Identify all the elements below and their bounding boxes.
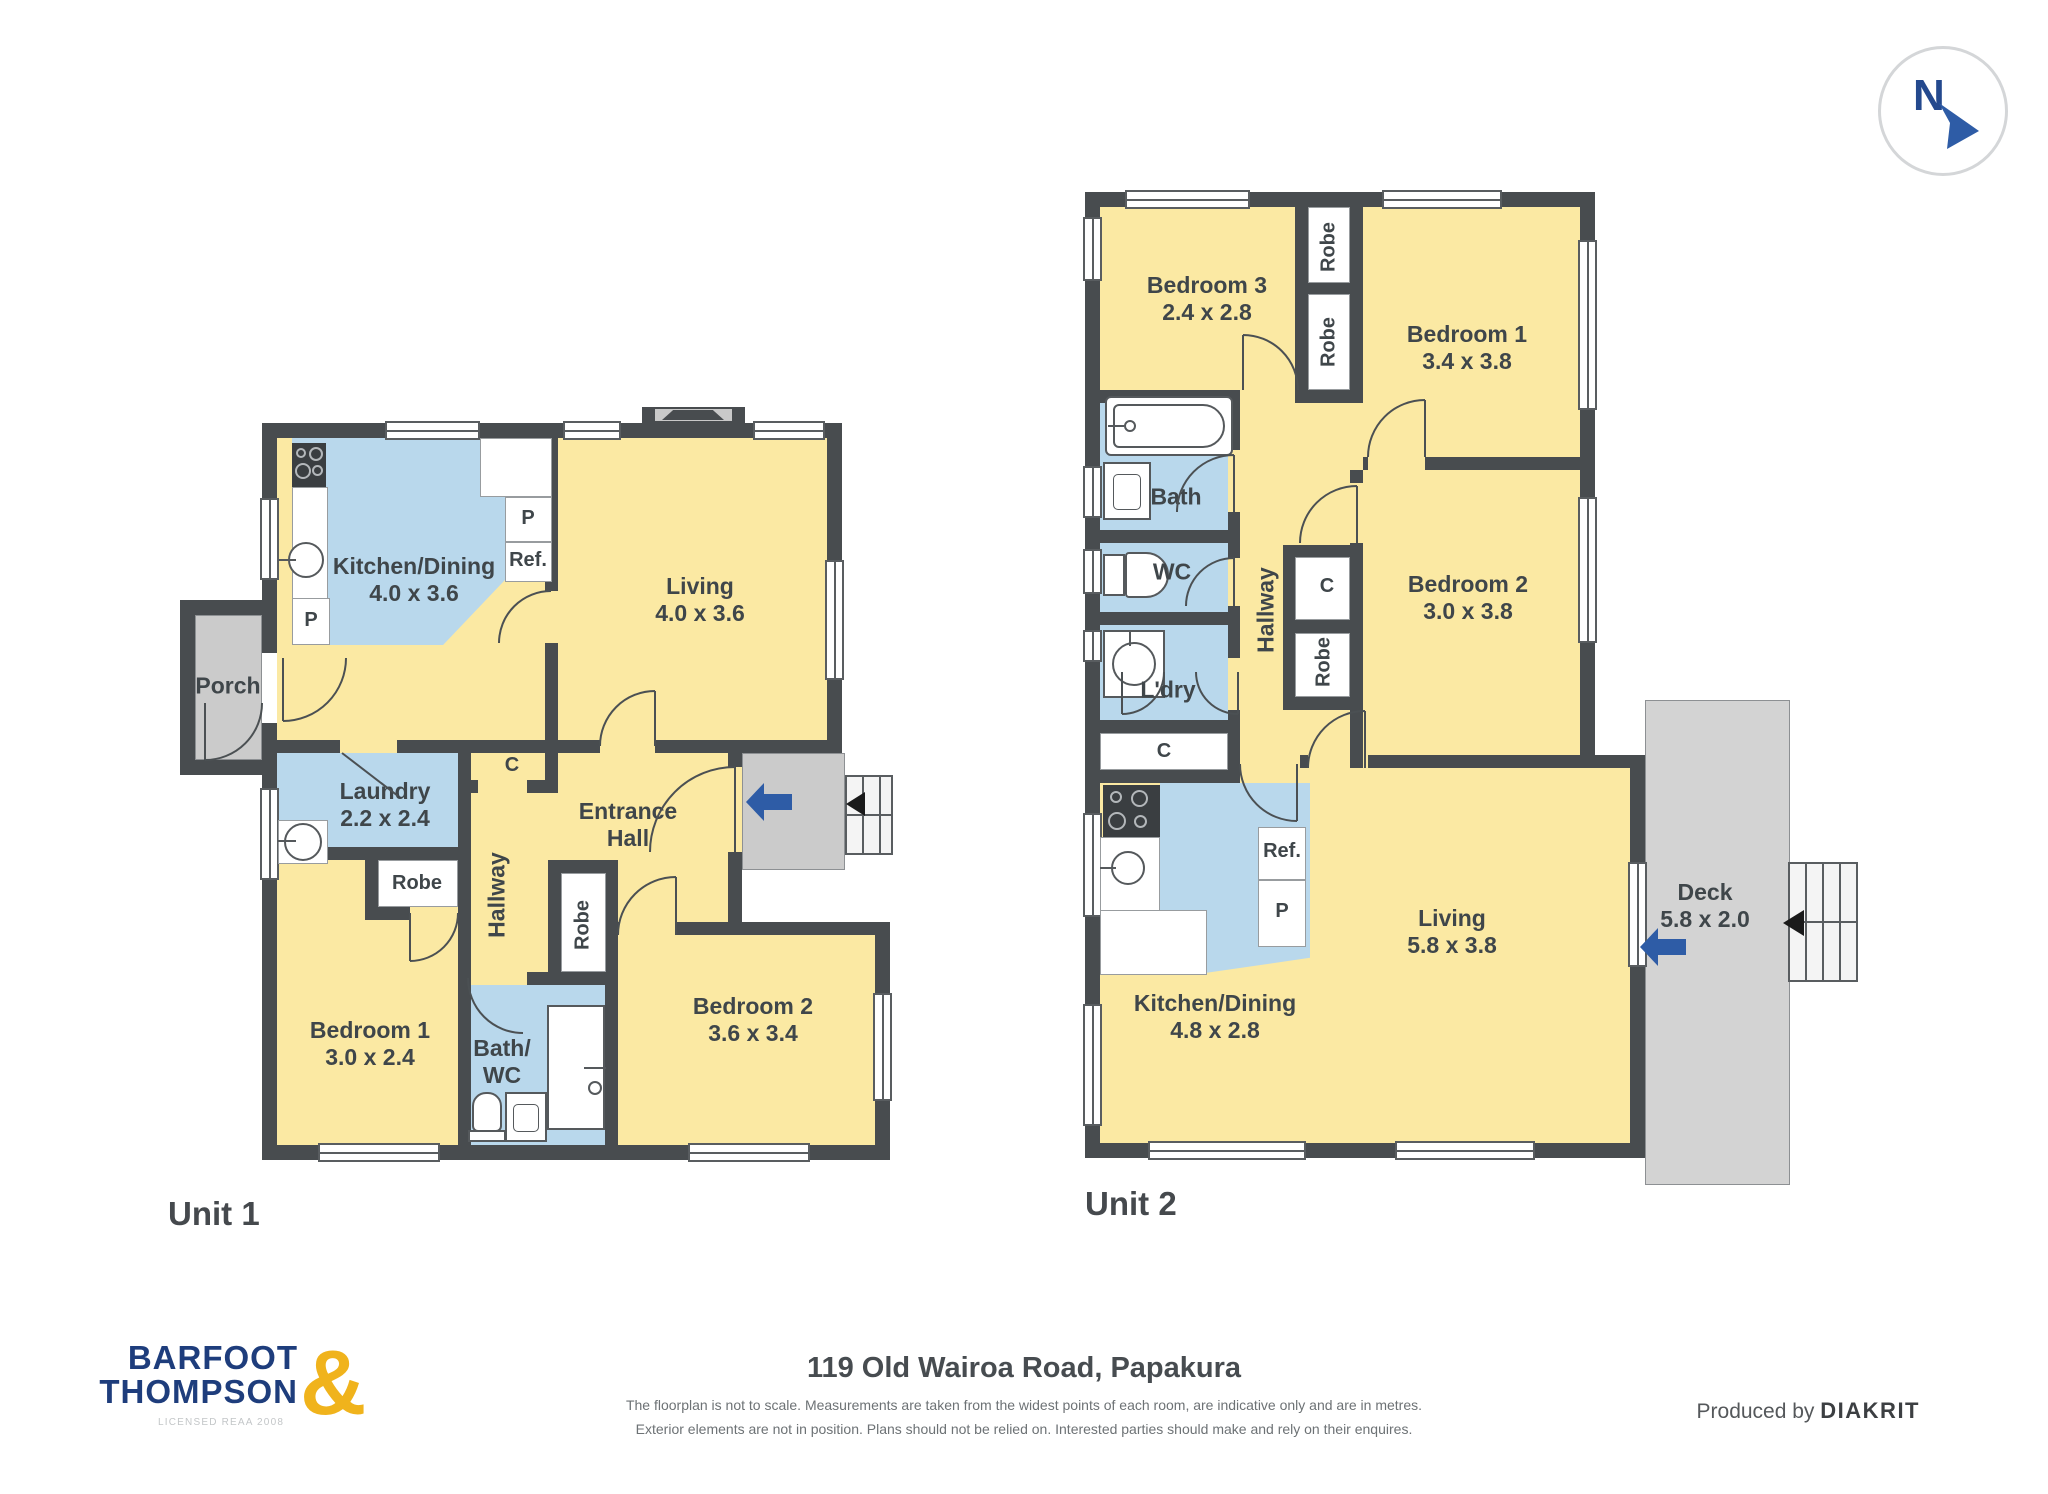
wall xyxy=(1295,207,1308,403)
wall xyxy=(1085,770,1240,783)
compass: N xyxy=(1878,46,2008,176)
window xyxy=(1148,1141,1306,1160)
window xyxy=(1083,217,1102,281)
wall xyxy=(1368,755,1580,768)
stove-burner xyxy=(296,448,306,458)
wall xyxy=(458,972,470,985)
window xyxy=(688,1143,810,1162)
window xyxy=(873,993,892,1101)
window xyxy=(1083,466,1102,518)
producer-name: DIAKRIT xyxy=(1820,1398,1920,1423)
stove-burner xyxy=(1110,791,1122,803)
robe-label: Robe xyxy=(1313,637,1336,687)
wall xyxy=(460,780,478,793)
room-label-bath-u2: Bath xyxy=(1150,483,1201,510)
wall xyxy=(1350,543,1363,768)
stove-burner xyxy=(1108,812,1126,830)
wall xyxy=(527,780,545,793)
wall xyxy=(1295,390,1363,403)
closet-label: C xyxy=(505,754,519,778)
kitchen-sink-icon xyxy=(288,542,324,578)
room-label-bedroom2-u2: Bedroom 23.0 x 3.8 xyxy=(1408,571,1528,625)
wall xyxy=(545,643,558,740)
wall xyxy=(180,760,277,775)
pantry-label: P xyxy=(1275,900,1288,924)
pantry-label: P xyxy=(304,609,317,633)
closet-label: C xyxy=(1157,740,1171,764)
window xyxy=(563,421,621,440)
window xyxy=(260,788,279,880)
wall xyxy=(1085,720,1240,733)
room-label-bedroom3-u2: Bedroom 32.4 x 2.8 xyxy=(1147,272,1267,326)
wall xyxy=(397,740,600,753)
room-label-wc-u2: WC xyxy=(1153,558,1191,585)
vanity-sink xyxy=(513,1104,539,1132)
room-label-deck-u2: Deck5.8 x 2.0 xyxy=(1660,879,1750,933)
unit2-deck-floor xyxy=(1645,700,1790,1185)
wall xyxy=(1283,545,1363,557)
window xyxy=(1578,497,1597,643)
wall xyxy=(180,600,195,775)
room-label-bedroom1-u2: Bedroom 13.4 x 3.8 xyxy=(1407,321,1527,375)
window xyxy=(318,1143,440,1162)
wall xyxy=(1363,457,1368,470)
window xyxy=(1578,240,1597,410)
toilet-icon xyxy=(472,1092,502,1132)
kitchen-counter xyxy=(480,438,552,497)
wall xyxy=(1350,207,1363,403)
fridge-label: Ref. xyxy=(509,549,547,573)
stove-burner xyxy=(1134,815,1147,828)
room-label-porch-u1: Porch xyxy=(195,672,260,699)
room-label-living-u2: Living5.8 x 3.8 xyxy=(1407,905,1497,959)
robe-label: Robe xyxy=(392,872,442,896)
wall xyxy=(676,922,890,935)
kitchen-sink-icon xyxy=(1111,851,1145,885)
exterior-patch xyxy=(845,855,892,922)
wall xyxy=(655,740,842,753)
window xyxy=(1083,630,1102,662)
unit1-title: Unit 1 xyxy=(168,1195,260,1233)
produced-by-text: Produced by xyxy=(1697,1400,1815,1423)
wall xyxy=(1228,512,1240,558)
wall xyxy=(1350,470,1363,483)
window xyxy=(753,421,825,440)
room-label-laundry-u1: Laundry2.2 x 2.4 xyxy=(340,778,431,832)
wall xyxy=(1283,697,1363,710)
robe-label: Robe xyxy=(1318,317,1341,367)
wall xyxy=(605,922,619,935)
room-label-kitchen-dining-u1: Kitchen/Dining4.0 x 3.6 xyxy=(333,553,495,607)
wall xyxy=(365,907,410,920)
unit2-deck-stairs xyxy=(1788,862,1858,982)
wall xyxy=(728,852,742,922)
slider-door xyxy=(1628,862,1647,967)
wall xyxy=(548,860,561,985)
wall xyxy=(527,972,618,985)
pantry-label: P xyxy=(521,507,534,531)
shower-icon xyxy=(547,1005,605,1130)
window xyxy=(260,498,279,580)
robe-label: Robe xyxy=(1318,222,1341,272)
laundry-tub-icon xyxy=(284,823,322,861)
wall xyxy=(1283,620,1363,633)
wall xyxy=(728,753,742,767)
produced-by: Produced by DIAKRIT xyxy=(1580,1398,1920,1424)
stove-burner xyxy=(1131,790,1148,807)
closet-label: C xyxy=(1320,575,1334,599)
room-label-living-u1: Living4.0 x 3.6 xyxy=(655,573,745,627)
wall xyxy=(1630,755,1645,862)
fridge-label: Ref. xyxy=(1263,840,1301,864)
wall xyxy=(365,847,471,860)
room-label-ldry-u2: L'dry xyxy=(1140,676,1195,703)
wall xyxy=(1300,755,1308,768)
toilet-tank xyxy=(468,1130,506,1142)
room-label-bathwc-u1: Bath/WC xyxy=(473,1035,531,1089)
window xyxy=(825,560,844,680)
floorplan-canvas: Kitchen/Dining4.0 x 3.6 Living4.0 x 3.6 … xyxy=(0,0,2048,1494)
wall xyxy=(605,860,618,1145)
unit1-entry-stairs xyxy=(845,775,893,855)
room-label-hallway-u2: Hallway xyxy=(1253,567,1280,653)
wall xyxy=(1228,710,1240,783)
window xyxy=(1083,1004,1102,1126)
window xyxy=(1125,190,1250,209)
vanity-sink xyxy=(1113,474,1141,510)
address-title: 119 Old Wairoa Road, Papakura xyxy=(0,1352,2048,1385)
wall xyxy=(277,740,340,753)
stove-burner xyxy=(312,465,323,476)
compass-needle-icon xyxy=(1935,101,1987,153)
wall xyxy=(458,753,471,1145)
stove-burner xyxy=(309,447,323,461)
room-label-hallway-u1: Hallway xyxy=(484,852,511,938)
wall xyxy=(545,753,558,793)
room-label-entrance-hall-u1: EntranceHall xyxy=(579,798,677,852)
window xyxy=(1395,1141,1535,1160)
wall xyxy=(1085,530,1240,543)
robe-label: Robe xyxy=(572,900,595,950)
toilet-tank xyxy=(1103,554,1125,596)
room-label-bedroom1-u1: Bedroom 13.0 x 2.4 xyxy=(310,1017,430,1071)
unit1-entry-landing xyxy=(742,753,845,870)
room-label-bedroom2-u1: Bedroom 23.6 x 3.4 xyxy=(693,993,813,1047)
window xyxy=(1382,190,1502,209)
wall xyxy=(1630,967,1645,1158)
window xyxy=(385,421,480,440)
kitchen-counter xyxy=(1100,910,1207,975)
room-label-kitchen-dining-u2: Kitchen/Dining4.8 x 2.8 xyxy=(1134,990,1296,1044)
window xyxy=(1083,549,1102,594)
wall xyxy=(1425,457,1595,470)
wall xyxy=(1085,612,1240,625)
unit2-title: Unit 2 xyxy=(1085,1185,1177,1223)
stove-burner xyxy=(295,463,311,479)
bathtub-inner xyxy=(1113,404,1225,448)
wall xyxy=(1228,606,1240,658)
